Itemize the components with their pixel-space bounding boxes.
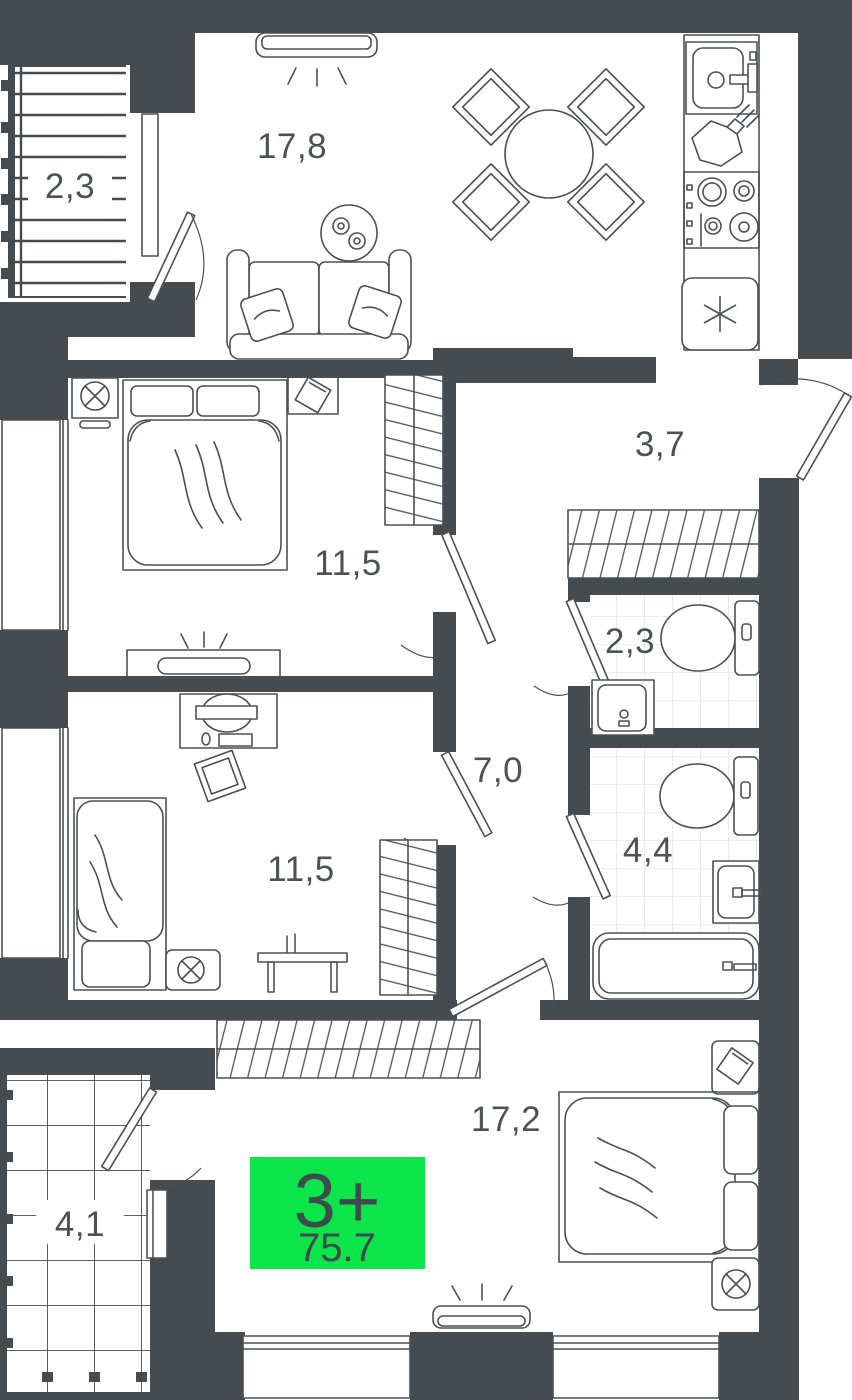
room-label-bedroom-1: 11,5 bbox=[314, 544, 382, 583]
double-bed-3-icon bbox=[559, 1092, 759, 1262]
window-balcony-partition-top bbox=[142, 114, 158, 256]
wardrobe-bedroom-1-icon bbox=[385, 375, 443, 525]
window-bedroom-1 bbox=[2, 420, 68, 630]
room-label-bedroom-3: 17,2 bbox=[471, 1100, 541, 1139]
toilet-wc-icon bbox=[661, 601, 759, 675]
floor-plan: 2,3 17,8 3,7 11,5 2,3 7,0 4,4 11,5 17,2 … bbox=[0, 0, 852, 1400]
room-label-bathroom: 4,4 bbox=[623, 831, 673, 870]
sofa-icon bbox=[227, 250, 411, 359]
nightstand-fan-2-icon bbox=[166, 950, 220, 990]
coffee-table-icon bbox=[321, 205, 377, 261]
window-bottom-left bbox=[243, 1336, 410, 1398]
washbasin-wc-icon bbox=[592, 680, 654, 735]
badge-total-area: 75.7 bbox=[298, 1226, 376, 1270]
wardrobe-bedroom-3-icon bbox=[217, 1020, 480, 1078]
window-bedroom-2 bbox=[2, 728, 68, 958]
closet-hallway-icon bbox=[568, 510, 759, 578]
window-balcony-partition-bottom bbox=[147, 1190, 167, 1258]
room-label-corridor: 7,0 bbox=[473, 751, 523, 790]
room-label-hallway: 3,7 bbox=[635, 425, 685, 464]
window-bottom-right bbox=[553, 1336, 719, 1398]
nightstand-fan-3-icon bbox=[712, 1258, 759, 1310]
room-label-wc: 2,3 bbox=[605, 622, 655, 661]
wardrobe-bedroom-2-icon bbox=[380, 840, 437, 995]
fridge-icon bbox=[682, 278, 758, 350]
room-label-balcony-bottom: 4,1 bbox=[55, 1205, 105, 1244]
room-label-balcony-top: 2,3 bbox=[45, 167, 95, 206]
washbasin-bath-icon bbox=[713, 861, 761, 923]
apartment-type-badge: 3+ 75.7 bbox=[250, 1157, 425, 1270]
room-label-bedroom-2: 11,5 bbox=[267, 850, 335, 889]
floor-plan-canvas: 2,3 17,8 3,7 11,5 2,3 7,0 4,4 11,5 17,2 … bbox=[0, 0, 852, 1400]
desk-icon bbox=[180, 694, 277, 748]
nightstand-book-3-icon bbox=[712, 1041, 759, 1094]
room-label-living-room: 17,8 bbox=[257, 127, 327, 166]
bathtub-icon bbox=[593, 933, 759, 999]
